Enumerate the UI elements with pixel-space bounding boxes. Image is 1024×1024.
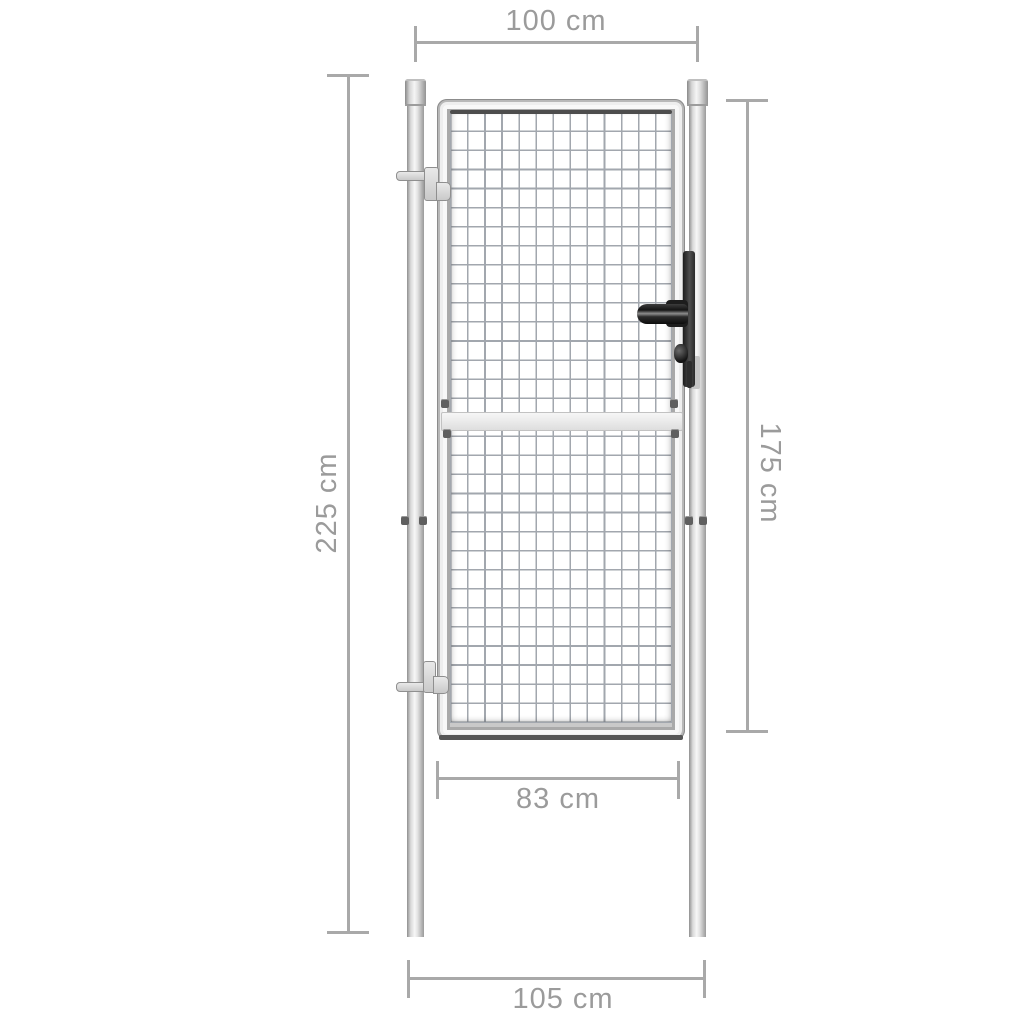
dim-outer-width-line (408, 977, 705, 980)
dim-post-height-line (347, 75, 350, 933)
rail-bolt-top-left (441, 399, 449, 408)
left-post-bolt-b (419, 516, 427, 525)
dim-top-width-line (415, 41, 698, 44)
dim-gate-height-tick-top (726, 99, 768, 102)
dim-outer-width-label: 105 cm (448, 984, 678, 1014)
right-post-cap (687, 79, 708, 106)
dim-post-height-tick-bottom (327, 931, 369, 934)
dim-outer-width-tick-left (407, 960, 410, 998)
left-post-cap (405, 79, 426, 106)
top-hinge-clamp (436, 182, 451, 201)
dim-gate-height-label: 175 cm (755, 408, 785, 538)
lock-rod (687, 361, 692, 388)
frame-bottom-shadow (439, 735, 683, 740)
rail-bolt-bottom-right (671, 429, 679, 438)
right-post-bolt-a (685, 516, 693, 525)
dim-post-height-tick-top (327, 74, 369, 77)
frame-top-inner-shadow (450, 110, 672, 114)
dim-gate-height-tick-bottom (726, 730, 768, 733)
dim-inner-width-tick-right (677, 761, 680, 799)
dim-top-width-tick-right (696, 26, 699, 62)
dim-top-width-label: 100 cm (441, 6, 671, 36)
dim-inner-width-tick-left (436, 761, 439, 799)
dim-outer-width-tick-right (703, 960, 706, 998)
right-post-bolt-b (699, 516, 707, 525)
dim-post-height-label: 225 cm (312, 438, 342, 568)
rail-bolt-top-right (670, 399, 678, 408)
dim-top-width-tick-left (414, 26, 417, 62)
left-post-bolt-a (401, 516, 409, 525)
bottom-hinge-clamp (433, 676, 449, 694)
gate-handle (637, 304, 688, 324)
dim-inner-width-label: 83 cm (443, 784, 673, 814)
dim-inner-width-line (437, 777, 679, 780)
dim-gate-height-line (746, 100, 749, 732)
lock-knob (674, 344, 688, 363)
middle-rail (441, 412, 683, 431)
rail-bolt-bottom-left (443, 429, 451, 438)
product-diagram-canvas: 100 cm 225 cm 175 cm 83 cm 105 cm (0, 0, 1024, 1024)
